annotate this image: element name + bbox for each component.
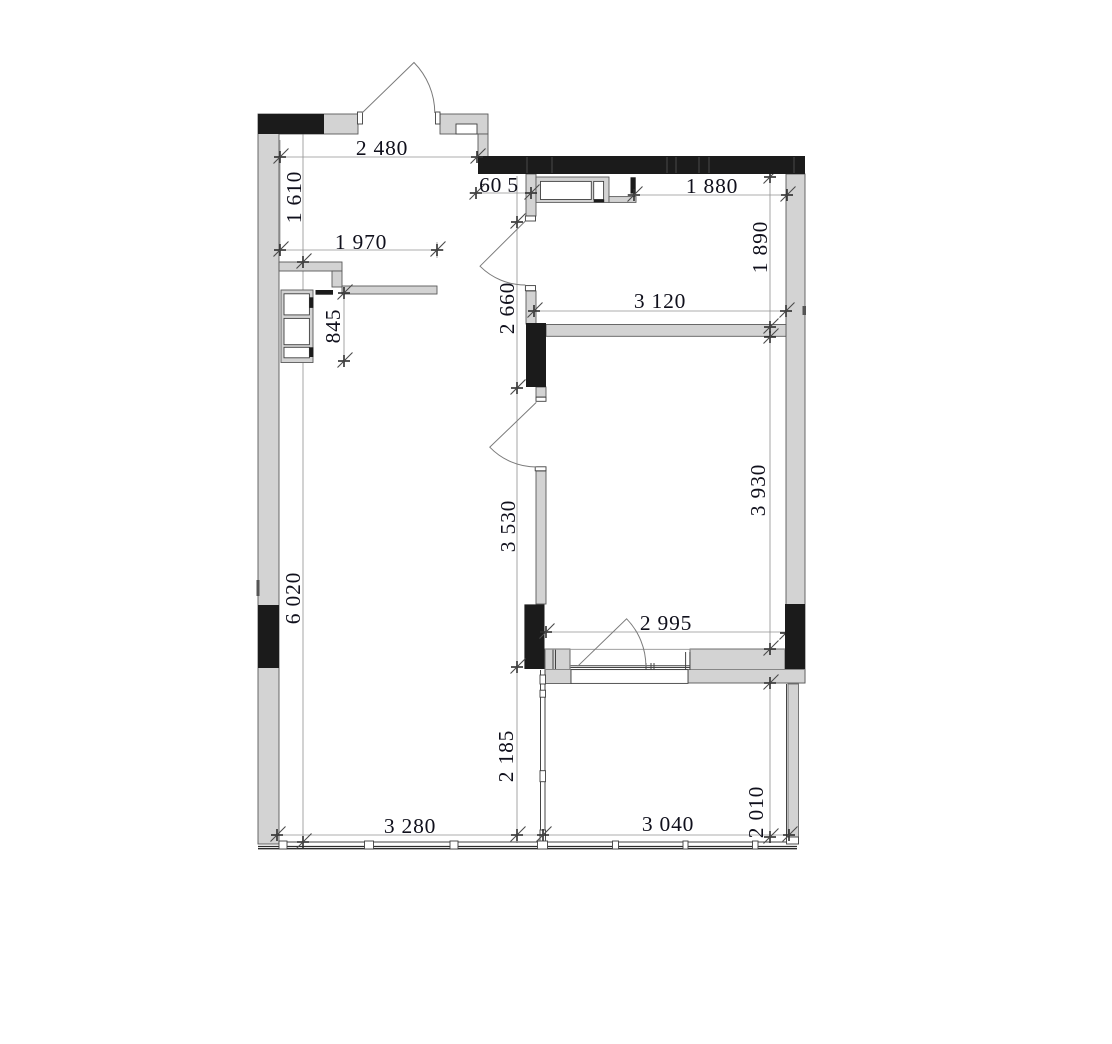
svg-text:2 660: 2 660 <box>495 282 519 334</box>
svg-text:2 995: 2 995 <box>640 611 692 635</box>
svg-text:60 5: 60 5 <box>479 173 519 197</box>
svg-text:845: 845 <box>321 309 345 344</box>
svg-text:3 280: 3 280 <box>384 814 436 838</box>
svg-text:3 120: 3 120 <box>634 289 686 313</box>
svg-text:1 880: 1 880 <box>686 174 738 198</box>
svg-text:1 610: 1 610 <box>282 171 306 223</box>
svg-text:3 530: 3 530 <box>496 500 520 552</box>
svg-text:2 185: 2 185 <box>494 730 518 782</box>
svg-text:3 040: 3 040 <box>642 812 694 836</box>
svg-text:1 890: 1 890 <box>748 221 772 273</box>
svg-text:2 480: 2 480 <box>356 136 408 160</box>
svg-text:1 970: 1 970 <box>335 230 387 254</box>
svg-text:3 930: 3 930 <box>746 464 770 516</box>
svg-text:6 020: 6 020 <box>281 572 305 624</box>
svg-text:2 010: 2 010 <box>744 786 768 838</box>
